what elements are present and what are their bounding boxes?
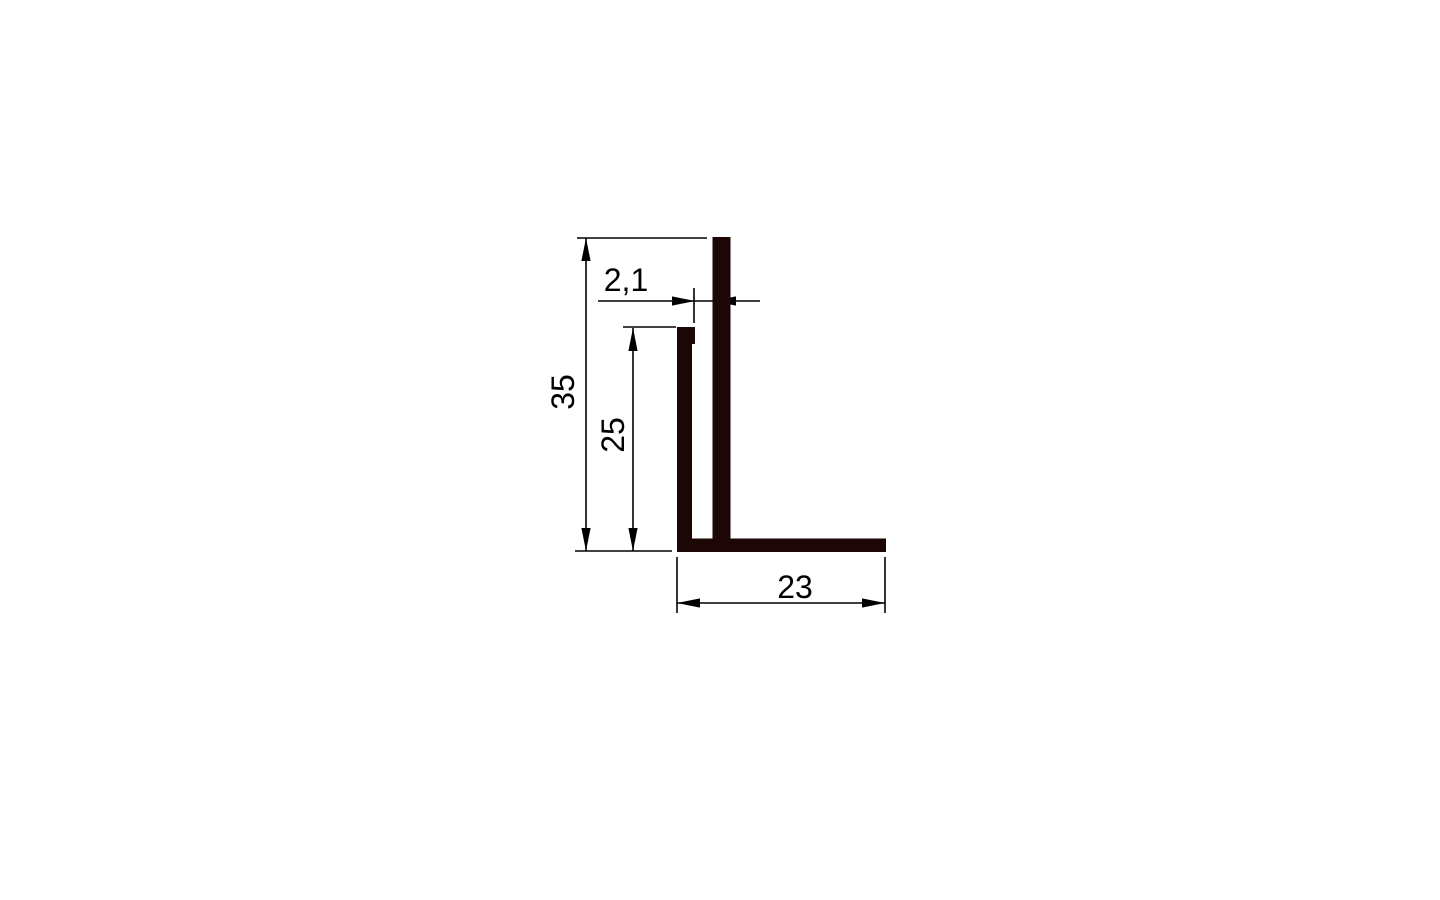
dim-width-23-label: 23 bbox=[777, 569, 813, 605]
dim-gap-2-1-arrowhead-icon bbox=[672, 296, 695, 305]
dim-height-35-arrowhead-icon bbox=[581, 238, 590, 261]
dim-height-35-label: 35 bbox=[545, 374, 581, 410]
dim-height-25-arrowhead-icon bbox=[628, 328, 637, 351]
dim-gap-2-1-label: 2,1 bbox=[604, 262, 648, 298]
dim-height-35-arrowhead-icon bbox=[581, 528, 590, 551]
profile-outer-vertical-wall bbox=[713, 237, 731, 552]
technical-drawing: 35252,123 bbox=[0, 0, 1440, 900]
dim-width-23-arrowhead-icon bbox=[862, 598, 885, 607]
drawing-canvas: 35252,123 bbox=[0, 0, 1440, 900]
dim-height-25-label: 25 bbox=[595, 417, 631, 453]
profile-bottom-flange bbox=[677, 539, 886, 553]
profile-inner-wall-top-lip bbox=[677, 327, 695, 344]
dim-height-25-arrowhead-icon bbox=[628, 528, 637, 551]
dim-width-23-arrowhead-icon bbox=[677, 598, 700, 607]
profile-inner-vertical-wall bbox=[677, 327, 692, 552]
